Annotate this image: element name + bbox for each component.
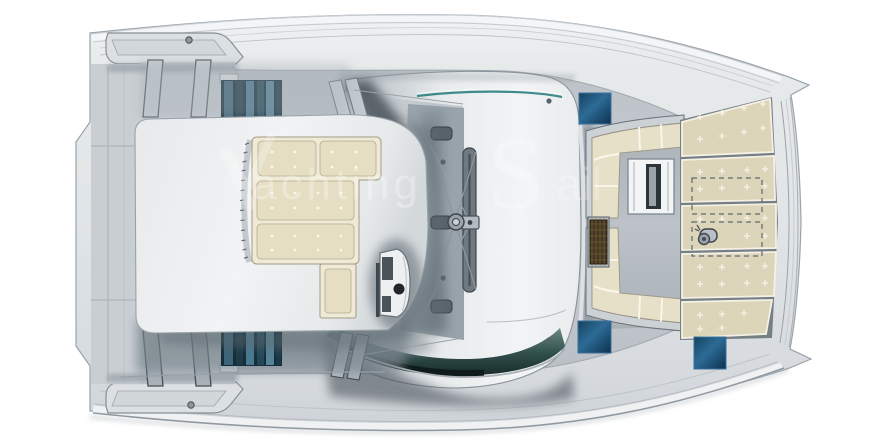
svg-text:S: S [487, 116, 545, 231]
svg-text:achting: achting [252, 160, 422, 209]
svg-text:ail: ail [556, 158, 602, 210]
